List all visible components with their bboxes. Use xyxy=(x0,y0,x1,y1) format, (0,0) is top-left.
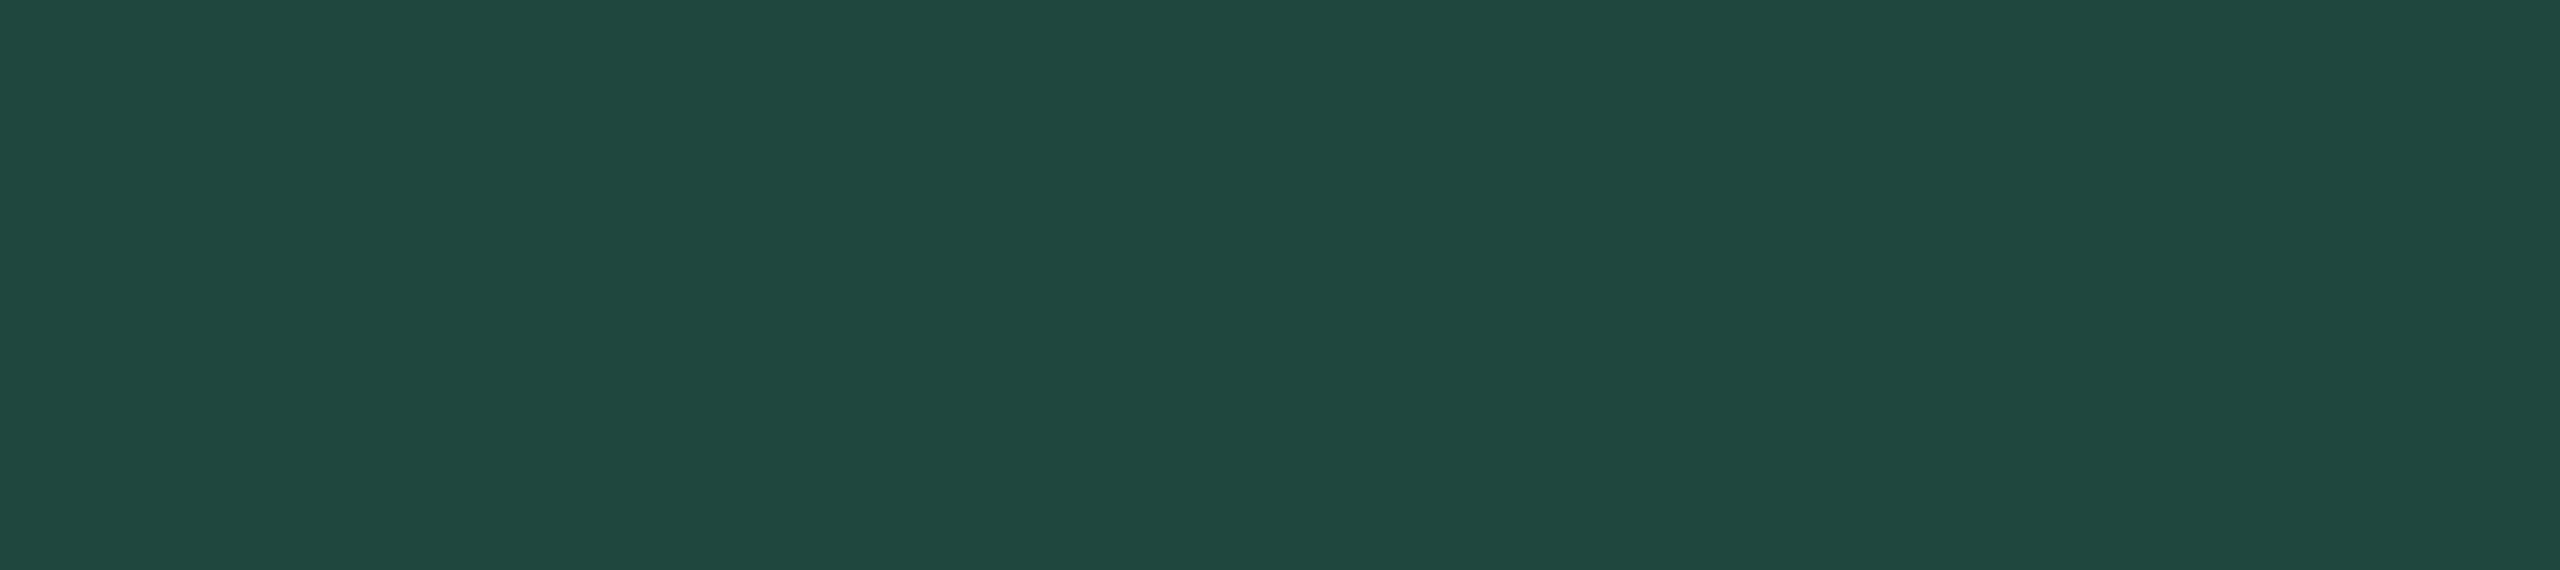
blank-screen-background xyxy=(0,0,2560,570)
